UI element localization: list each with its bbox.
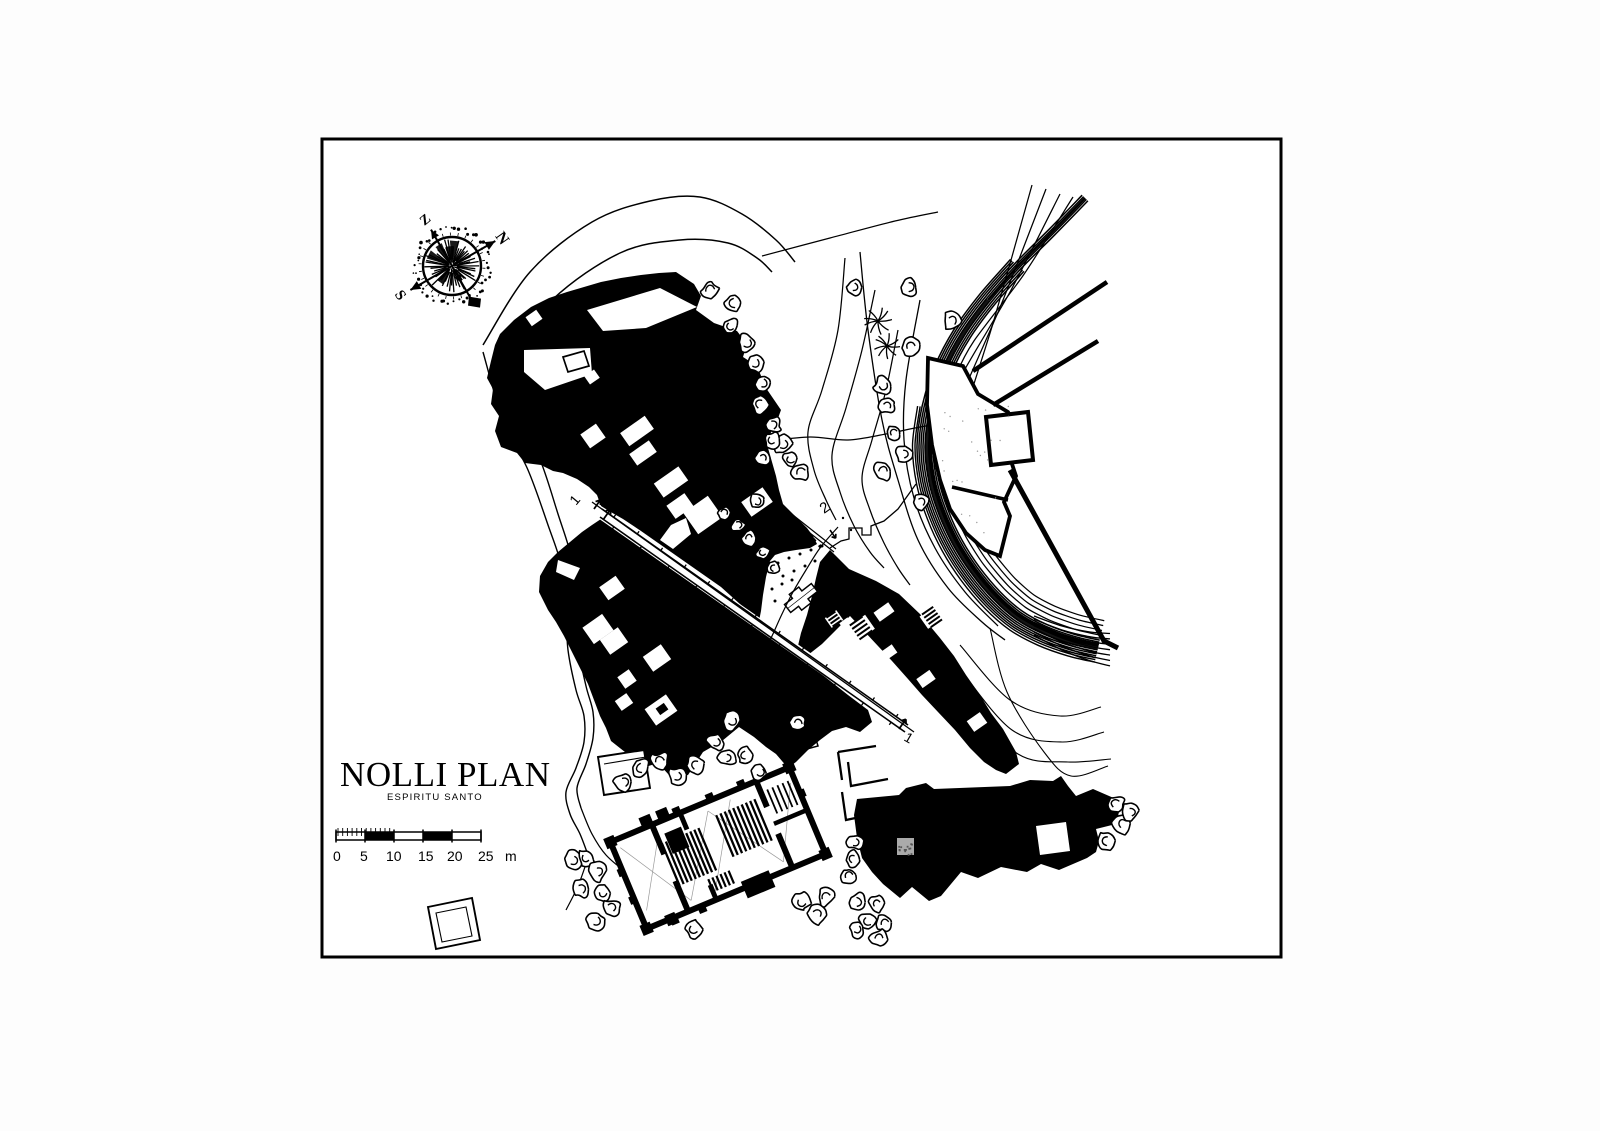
svg-text:NOLLI PLAN: NOLLI PLAN: [340, 755, 552, 794]
svg-text:15: 15: [418, 848, 434, 864]
svg-text:ESPIRITU SANTO: ESPIRITU SANTO: [387, 792, 483, 803]
svg-text:m: m: [505, 848, 517, 864]
svg-text:20: 20: [447, 848, 463, 864]
svg-text:10: 10: [386, 848, 402, 864]
svg-text:0: 0: [333, 848, 341, 864]
svg-text:25: 25: [478, 848, 494, 864]
svg-text:5: 5: [360, 848, 368, 864]
